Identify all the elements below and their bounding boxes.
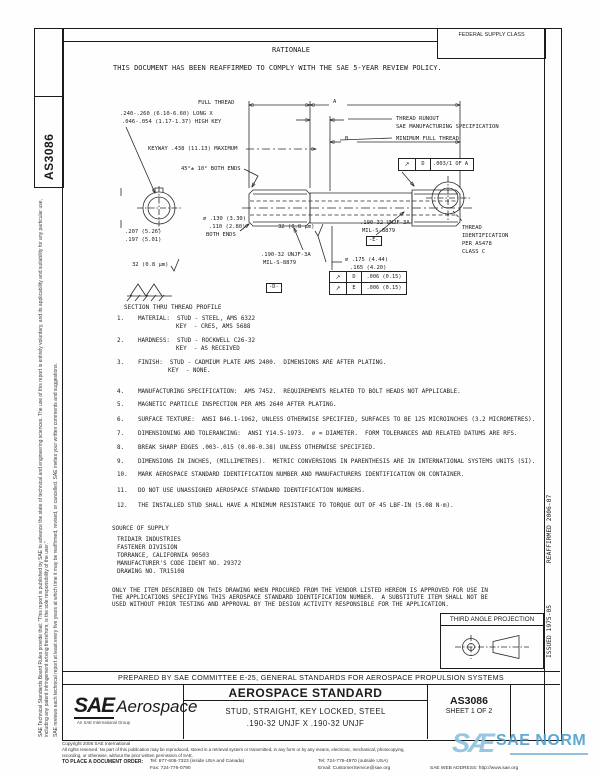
note-number: 9. [117, 460, 138, 466]
note-4: 4.MANUFACTURING SPECIFICATION: AMS 7452.… [117, 390, 461, 396]
thread-d-line2: MIL-S-8879 [263, 259, 296, 267]
sae-rules-paragraph: SAE Technical Standards Board Rules prov… [38, 197, 50, 737]
note-text: BREAK SHARP EDGES .003-.015 (0.08-0.38) … [138, 446, 376, 452]
watermark-underline [510, 753, 588, 755]
note-11: 11.DO NOT USE UNASSIGNED AEROSPACE STAND… [117, 489, 365, 495]
rationale-rule [62, 41, 437, 42]
fcf-e-tolerance: .006 (0.15) [362, 283, 406, 294]
standard-title-line1: STUD, STRAIGHT, KEY LOCKED, STEEL [184, 707, 427, 716]
sae-logo-tagline: An SAE International Group [77, 720, 197, 725]
note-number: 6. [117, 418, 138, 424]
dia-mid-line1: ⌀ .175 (4.44) [345, 256, 388, 264]
key-size-line2: .046-.054 (1.17-1.37) HIGH KEY [122, 118, 221, 126]
supplier-name: TRIDAIR INDUSTRIES [117, 538, 181, 544]
runout-symbol-icon: ↗ [399, 159, 416, 170]
side-label-divider [34, 96, 62, 97]
third-angle-projection-box: THIRD ANGLE PROJECTION [440, 613, 544, 669]
finish-left-label: 32 (0.8 μm) [132, 261, 168, 269]
chamfer-label: 45°± 10° BOTH ENDS [181, 165, 241, 173]
stud-side-view [242, 190, 472, 226]
note-number: 2. [117, 339, 138, 345]
note-number: 7. [117, 432, 138, 438]
note-text: MATERIAL: STUD - STEEL, AMS 6322 [138, 317, 255, 323]
min-full-thread-label: MINIMUM FULL THREAD [396, 135, 459, 143]
order-fax: Fax: 724-776-0790 [150, 766, 191, 771]
thread-id-line1: THREAD [462, 224, 482, 232]
dia-ends-line1: ⌀ .130 (3.30) [203, 215, 246, 223]
note-text: HARDNESS: STUD - ROCKWELL C26-32 [138, 339, 255, 345]
standard-number: AS3086 [428, 695, 510, 707]
thread-id-line2: IDENTIFICATION [462, 232, 508, 240]
note-5: 5.MAGNETIC PARTICLE INSPECTION PER AMS 2… [117, 403, 337, 409]
note-text: DO NOT USE UNASSIGNED AEROSPACE STANDARD… [138, 489, 365, 495]
runout-feature-control-frame: ↗ D .003/1 OF A [398, 158, 474, 171]
note-number: 3. [117, 361, 138, 367]
rationale-title: RATIONALE [272, 45, 310, 56]
fcf-tolerance: .003/1 OF A [431, 159, 470, 170]
note-text: MANUFACTURING SPECIFICATION: AMS 7452. R… [138, 390, 461, 396]
order-email[interactable]: Email: CustomerService@sae.org [318, 766, 390, 771]
note-text: MARK AEROSPACE STANDARD IDENTIFICATION N… [138, 473, 464, 479]
note-number: 11. [117, 489, 138, 495]
web-address[interactable]: SAE WEB ADDRESS: http://www.sae.org [430, 766, 518, 771]
supplier-division: FASTENER DIVISION [117, 546, 177, 552]
note-10: 10.MARK AEROSPACE STANDARD IDENTIFICATIO… [117, 473, 464, 479]
note-text: DIMENSIONS IN INCHES, (MILLIMETRES). MET… [138, 460, 535, 466]
note-2-cont: KEY - AS RECEIVED [176, 347, 240, 353]
full-thread-label: FULL THREAD [198, 99, 234, 107]
across-flats-line2: .197 (5.01) [125, 236, 161, 244]
sae-logo-text: SAE [74, 694, 114, 719]
prepared-by-line: PREPARED BY SAE COMMITTEE E-25, GENERAL … [62, 673, 560, 682]
note-1: 1.MATERIAL: STUD - STEEL, AMS 6322 [117, 317, 255, 323]
note-number: 12. [117, 504, 138, 510]
finish-mid-label: 32 (0.8 μm) [278, 223, 314, 231]
rights-line2: recording, or otherwise, without the pri… [62, 753, 193, 758]
datum-e-flag: -E- [366, 236, 382, 246]
supplier-drawing-no: DRAWING NO. TR15108 [117, 570, 184, 576]
thread-e-line1: .190-32 UNJF-3A [360, 219, 410, 227]
doc-type-rule [184, 700, 427, 701]
rights-line1: All rights reserved. No part of this pub… [62, 747, 405, 752]
thread-runout-line2: SAE MANUFACTURING SPECIFICATION [396, 123, 499, 131]
fcf-datum-e-row: ↗ E .006 (0.15) [329, 282, 407, 295]
note-3-cont: KEY - NONE. [168, 369, 211, 375]
note-12: 12.THE INSTALLED STUD SHALL HAVE A MINIM… [117, 504, 454, 510]
order-tel-intl: Tel: 724-776-4970 (outside USA) [318, 759, 388, 764]
fcf-e-datum: E [347, 283, 362, 294]
copyright-line: Copyright 2006 SAE International [62, 741, 130, 746]
dia-ends-line3: BOTH ENDS [206, 231, 236, 239]
key-size-line1: .240-.260 (6.10-6.60) LONG X [120, 110, 213, 118]
thread-runout-line1: THREAD RUNOUT [396, 115, 439, 123]
note-text: SURFACE TEXTURE: ANSI B46.1-1962, UNLESS… [138, 418, 535, 424]
document-page: SAE Technical Standards Board Rules prov… [0, 0, 600, 776]
dim-a-label: A [333, 98, 336, 106]
note-1-cont: KEY - CRES, AMS 5688 [176, 325, 250, 331]
note-number: 5. [117, 403, 138, 409]
supplier-address: TORRANCE, CALIFORNIA 90503 [117, 554, 209, 560]
side-label-text: AS3086 [42, 134, 56, 180]
thread-profile-section [127, 284, 172, 301]
section-profile-label: SECTION THRU THREAD PROFILE [124, 303, 222, 312]
supplier-code-ident: MANUFACTURER'S CODE IDENT NO. 29372 [117, 562, 241, 568]
note-number: 4. [117, 390, 138, 396]
sae-norm-logo-icon: SÆ [452, 731, 493, 755]
left-end-view [121, 186, 181, 230]
note-6: 6.SURFACE TEXTURE: ANSI B46.1-1962, UNLE… [117, 418, 535, 424]
thread-d-line1: .190-32 UNJF-3A [261, 251, 311, 259]
dim-b-label: B [345, 135, 348, 143]
datum-d-flag: -D- [266, 283, 282, 293]
thread-id-line4: CLASS C [462, 248, 485, 256]
note-9: 9.DIMENSIONS IN INCHES, (MILLIMETRES). M… [117, 460, 535, 466]
order-label: TO PLACE A DOCUMENT ORDER: [62, 759, 143, 765]
doc-type-heading: AEROSPACE STANDARD [184, 686, 427, 700]
sae-norm-watermark: SÆ SAE NORM [452, 731, 586, 755]
issued-status: ISSUED 1975-05 [547, 658, 600, 664]
fcf-datum-ref: D [416, 159, 431, 170]
note-8: 8.BREAK SHARP EDGES .003-.015 (0.08-0.38… [117, 446, 376, 452]
vendor-notice-line3: USED WITHOUT PRIOR TESTING AND APPROVAL … [112, 603, 449, 609]
keyway-label: KEYWAY .438 (11.13) MAXIMUM [148, 145, 237, 153]
thread-id-line3: PER AS478 [462, 240, 492, 248]
note-7: 7.DIMENSIONING AND TOLERANCING: ANSI Y14… [117, 432, 517, 438]
thread-e-line2: MIL-S-8879 [362, 227, 395, 235]
third-angle-projection-title: THIRD ANGLE PROJECTION [441, 614, 543, 626]
issued-text: ISSUED 1975-05 [547, 605, 553, 658]
reaffirm-notice: THIS DOCUMENT HAS BEEN REAFFIRMED TO COM… [113, 63, 442, 74]
sae-norm-text: SAE NORM [496, 731, 586, 751]
runout-symbol-icon: ↗ [330, 283, 347, 294]
note-text: FINISH: STUD - CADMIUM PLATE AMS 2400. D… [138, 361, 386, 367]
note-text: THE INSTALLED STUD SHALL HAVE A MINIMUM … [138, 504, 454, 510]
dia-ends-line2: .110 (2.80) [209, 223, 245, 231]
sae-aerospace-logo: SAEAerospace An SAE International Group [74, 694, 197, 725]
source-of-supply-title: SOURCE OF SUPPLY [112, 527, 169, 533]
reaffirmed-text: REAFFIRMED 2006-07 [547, 495, 553, 563]
sae-review-paragraph: SAE reviews each technical report at lea… [53, 197, 59, 737]
note-number: 1. [117, 317, 138, 323]
federal-supply-class-label: FEDERAL SUPPLY CLASS [438, 32, 545, 38]
federal-supply-class-box: FEDERAL SUPPLY CLASS [437, 28, 546, 59]
third-angle-projection-icon [441, 627, 543, 667]
frame-inner-right-line [544, 28, 545, 739]
band-top-rule [62, 671, 560, 672]
order-tel-us: Tel: 877-606-7323 (inside USA and Canada… [150, 759, 244, 764]
note-2: 2.HARDNESS: STUD - ROCKWELL C26-32 [117, 339, 255, 345]
note-text: MAGNETIC PARTICLE INSPECTION PER AMS 264… [138, 403, 337, 409]
note-number: 8. [117, 446, 138, 452]
sheet-number: SHEET 1 OF 2 [428, 708, 510, 715]
reaffirmed-status: REAFFIRMED 2006-07 [547, 563, 600, 569]
note-text: DIMENSIONING AND TOLERANCING: ANSI Y14.5… [138, 432, 517, 438]
across-flats-line1: .207 (5.26) [125, 228, 161, 236]
note-3: 3.FINISH: STUD - CADMIUM PLATE AMS 2400.… [117, 361, 386, 367]
note-number: 10. [117, 473, 138, 479]
standard-title-line2: .190-32 UNJF X .190-32 UNJF [184, 719, 427, 728]
